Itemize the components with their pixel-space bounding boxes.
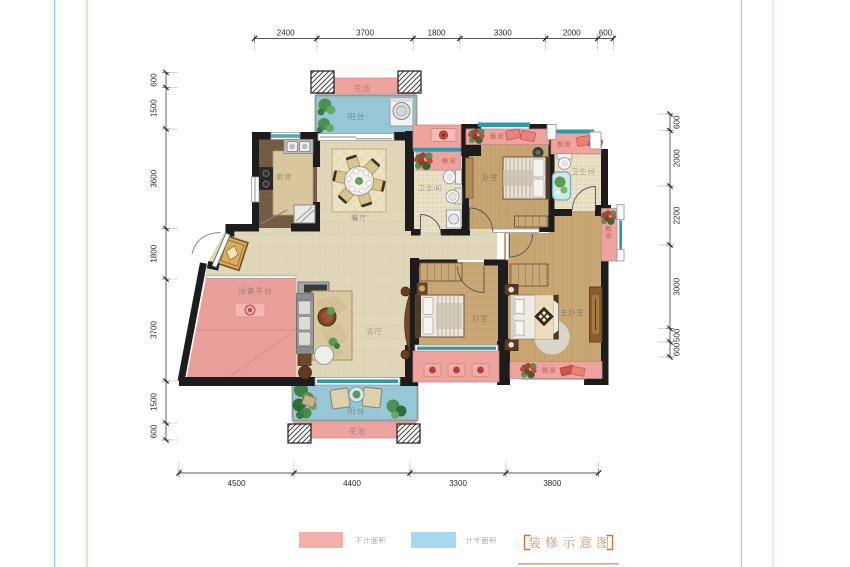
svg-text:3000: 3000 [673, 277, 682, 295]
svg-text:3700: 3700 [356, 29, 374, 38]
svg-text:3800: 3800 [543, 479, 561, 488]
svg-text:3300: 3300 [449, 479, 467, 488]
svg-text:3700: 3700 [150, 321, 159, 339]
svg-text:1800: 1800 [428, 29, 446, 38]
svg-text:1500: 1500 [150, 393, 159, 411]
svg-text:3600: 3600 [150, 169, 159, 187]
svg-text:3300: 3300 [494, 29, 512, 38]
svg-text:600: 600 [673, 342, 682, 356]
svg-text:600: 600 [599, 29, 613, 38]
svg-text:600: 600 [673, 115, 682, 129]
svg-text:1500: 1500 [150, 99, 159, 117]
svg-text:2000: 2000 [563, 29, 581, 38]
svg-text:2200: 2200 [673, 206, 682, 224]
svg-text:2400: 2400 [277, 29, 295, 38]
svg-text:600: 600 [150, 73, 159, 87]
svg-text:1800: 1800 [150, 244, 159, 262]
svg-text:600: 600 [150, 424, 159, 438]
svg-text:4500: 4500 [228, 479, 246, 488]
svg-text:500: 500 [673, 328, 682, 342]
svg-text:4400: 4400 [343, 479, 361, 488]
svg-text:2000: 2000 [673, 149, 682, 167]
